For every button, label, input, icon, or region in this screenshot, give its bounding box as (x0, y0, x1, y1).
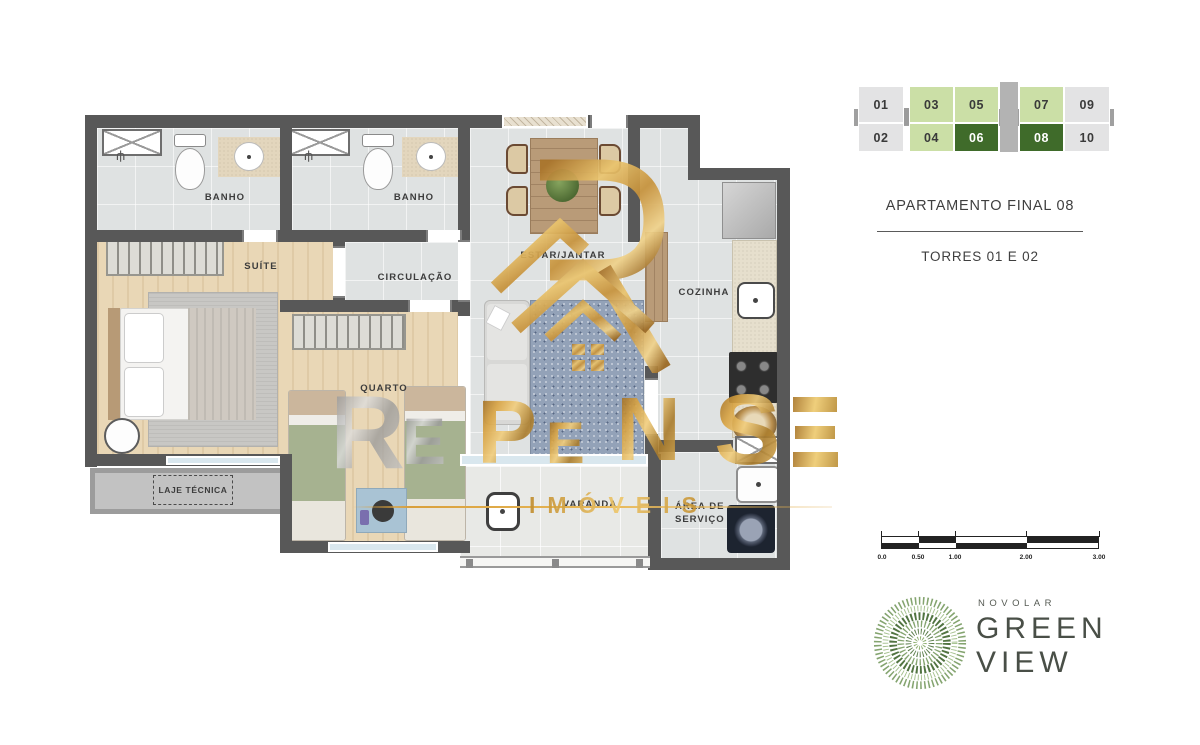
scale-tick (1099, 531, 1100, 537)
toilet-icon (362, 134, 394, 147)
shower-box-icon (290, 129, 350, 156)
unit-cell-05[interactable]: 05 (954, 86, 999, 123)
unit-cell-07[interactable]: 07 (1019, 86, 1064, 123)
railing-post (552, 559, 559, 568)
watermark-letter: S (714, 392, 781, 468)
scale-label: 3.00 (1093, 554, 1106, 561)
shower-head-icon: ψ (304, 150, 313, 165)
railing-post (636, 559, 643, 568)
room-label-banho2: BANHO (394, 192, 434, 203)
window (328, 542, 438, 552)
scale-segment (882, 543, 919, 548)
lamp-icon (372, 500, 394, 522)
pillow (124, 313, 164, 363)
bedroom-wardrobe (292, 314, 406, 350)
sink-drain-icon (753, 298, 758, 303)
wall (85, 115, 97, 467)
scale-segment (919, 543, 956, 548)
room-label: LAJE TÉCNICA (158, 485, 227, 495)
wall (648, 558, 790, 570)
bed-foot (289, 501, 345, 541)
fan-icon (104, 418, 140, 454)
scale-label: 0.50 (912, 554, 925, 561)
unit-cell-04[interactable]: 04 (909, 123, 954, 152)
unit-cell-10[interactable]: 10 (1064, 123, 1110, 152)
technical-slab-label-box: LAJE TÉCNICA (153, 475, 233, 505)
sink-drain-icon (500, 509, 505, 514)
suite-wardrobe (106, 240, 224, 276)
watermark-letter: E (546, 422, 585, 466)
watermark-letter: N (616, 396, 681, 464)
apartment-title: APARTAMENTO FINAL 08 (815, 198, 1145, 214)
toilet-bowl-icon (363, 148, 393, 190)
greenview-name-line1: GREEN (976, 612, 1108, 646)
balcony-railing (460, 556, 650, 568)
unit-cell-08[interactable]: 08 (1019, 123, 1064, 152)
sink-drain-icon (429, 155, 433, 159)
watermark-letter: R (330, 394, 405, 473)
phone-icon (360, 510, 369, 525)
unit-cell-01[interactable]: 01 (858, 86, 904, 123)
wall (777, 168, 790, 570)
wall (688, 168, 790, 180)
window (166, 456, 280, 465)
scale-label: 1.00 (949, 554, 962, 561)
scale-bar-body (881, 536, 1099, 549)
toilet-icon (174, 134, 206, 147)
door-opening (333, 246, 345, 298)
room-label-suite: SUÍTE (244, 261, 277, 272)
scale-segment (1027, 543, 1098, 548)
railing-post (466, 559, 473, 568)
unit-cell-06[interactable]: 06 (954, 123, 999, 152)
unit-cell-02[interactable]: 02 (858, 123, 904, 152)
unit-cell-09[interactable]: 09 (1064, 86, 1110, 123)
window (502, 115, 588, 128)
door-opening (458, 240, 470, 302)
watermark-logo-r-house-icon (488, 158, 673, 373)
washing-machine-icon (727, 505, 775, 553)
building-step-cutout (696, 112, 796, 168)
letter-bar (795, 426, 835, 439)
towers-subtitle: TORRES 01 E 02 (815, 249, 1145, 264)
watermark-letter-e-bars (793, 397, 839, 467)
door-opening (408, 300, 452, 312)
room-label-circulacao: CIRCULAÇÃO (378, 272, 453, 283)
door-opening (426, 230, 462, 242)
scale-bar: 0.0 0.50 1.00 2.00 3.00 (879, 531, 1105, 563)
suite-blanket (188, 308, 256, 420)
room-label-banho1: BANHO (205, 192, 245, 203)
watermark-letter: P (477, 399, 537, 467)
novolar-brand-text: NOVOLAR (978, 598, 1056, 609)
wall (280, 454, 292, 553)
shower-box-icon (102, 129, 162, 156)
room-label-cozinha: COZINHA (679, 287, 730, 298)
greenview-name-line2: VIEW (976, 646, 1073, 680)
scale-label: 0.0 (877, 554, 886, 561)
watermark-imoveis-text: IMÓVEIS (529, 492, 709, 519)
letter-bar (793, 452, 838, 467)
unit-cell-03[interactable]: 03 (909, 86, 954, 123)
wall (280, 115, 292, 242)
building-key-diagram: 01 02 03 04 05 06 07 08 09 10 (854, 82, 1114, 154)
pillow (124, 367, 164, 417)
scale-label: 2.00 (1020, 554, 1033, 561)
divider-line (877, 231, 1083, 232)
sink-drain-icon (247, 155, 251, 159)
letter-bar (793, 397, 837, 412)
toilet-bowl-icon (175, 148, 205, 190)
suite-bed-headboard (108, 308, 120, 420)
shower-head-icon: ψ (116, 150, 125, 165)
greenview-mandala-icon (872, 586, 968, 700)
fridge-icon (722, 182, 776, 239)
watermark-letter: E (402, 416, 446, 466)
scale-segment (956, 543, 1027, 548)
door-opening (242, 230, 278, 242)
floorplan-page: ψ ψ (0, 0, 1200, 745)
elevator-core (1000, 82, 1018, 152)
entry-door-opening (590, 115, 628, 128)
